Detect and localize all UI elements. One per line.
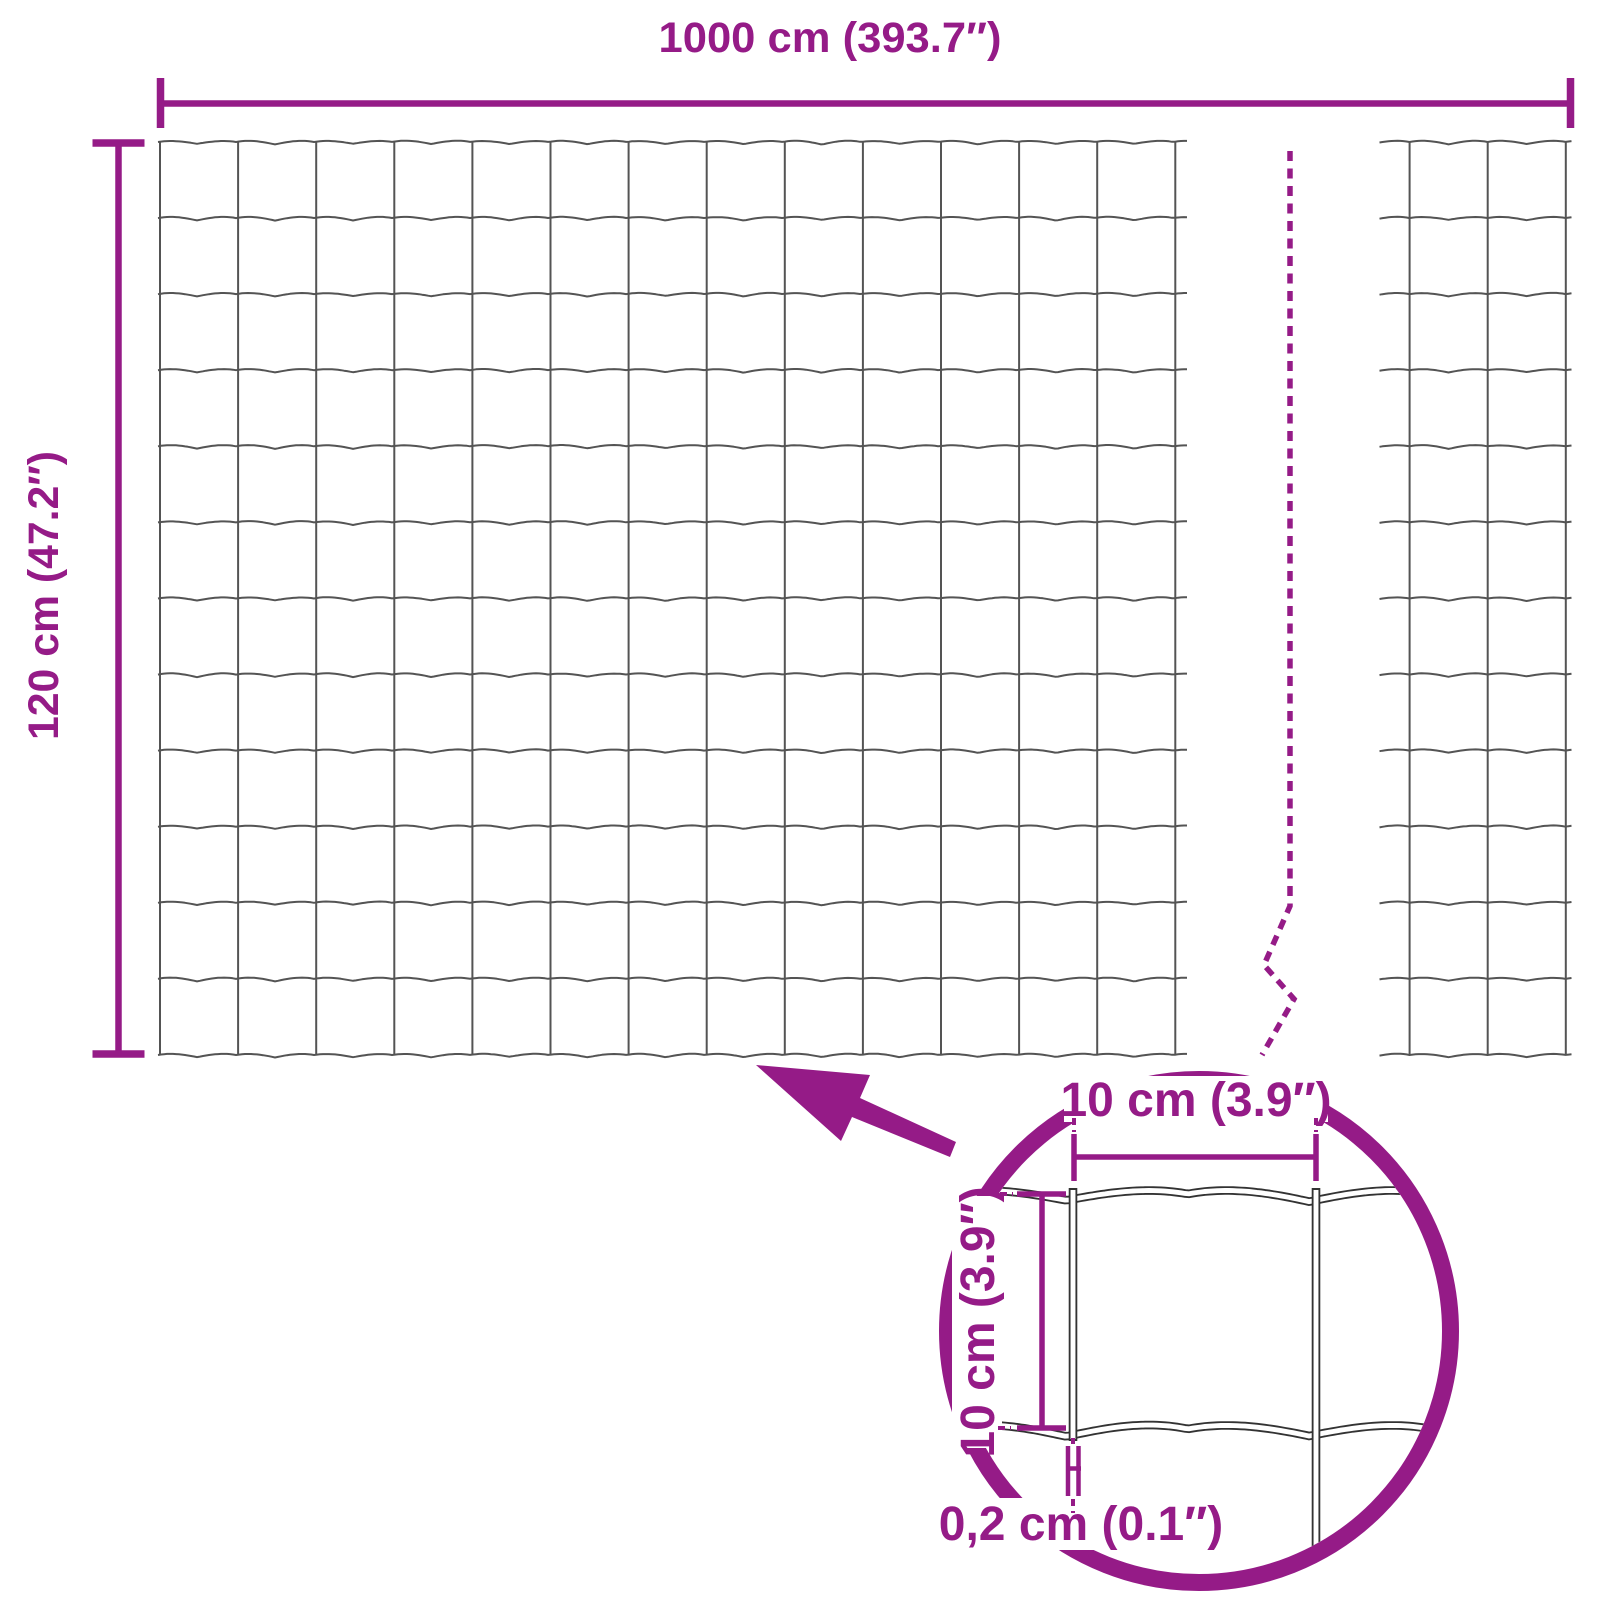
svg-text:10 cm (3.9″): 10 cm (3.9″) [1060, 1074, 1331, 1127]
svg-text:10 cm (3.9″): 10 cm (3.9″) [952, 1186, 1005, 1457]
svg-text:120 cm (47.2″): 120 cm (47.2″) [20, 451, 68, 740]
svg-text:0,2 cm (0.1″): 0,2 cm (0.1″) [939, 1498, 1223, 1551]
svg-text:1000 cm (393.7″): 1000 cm (393.7″) [659, 14, 1002, 62]
